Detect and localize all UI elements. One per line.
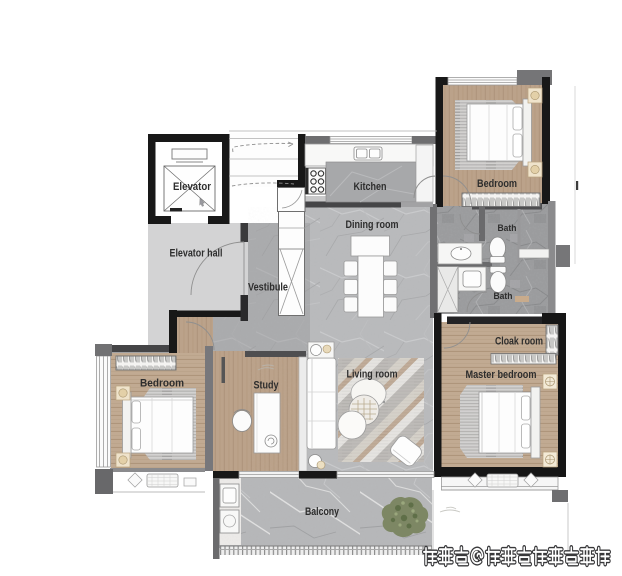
svg-text:Dining room: Dining room bbox=[346, 219, 399, 231]
svg-text:Vestibule: Vestibule bbox=[248, 282, 288, 294]
svg-text:Cloak room: Cloak room bbox=[495, 336, 543, 348]
svg-text:Bedroom: Bedroom bbox=[477, 178, 517, 190]
svg-text:Bedroom: Bedroom bbox=[140, 378, 184, 390]
svg-text:Bath: Bath bbox=[498, 223, 517, 233]
svg-text:Balcony: Balcony bbox=[305, 506, 340, 518]
svg-text:Elevator hall: Elevator hall bbox=[170, 248, 223, 260]
svg-text:Kitchen: Kitchen bbox=[354, 181, 387, 193]
svg-text:Bath: Bath bbox=[494, 291, 513, 301]
svg-text:Elevator: Elevator bbox=[173, 181, 212, 193]
svg-text:Living room: Living room bbox=[347, 369, 398, 381]
svg-text:Study: Study bbox=[254, 380, 280, 392]
svg-text:Master bedroom: Master bedroom bbox=[466, 369, 537, 381]
